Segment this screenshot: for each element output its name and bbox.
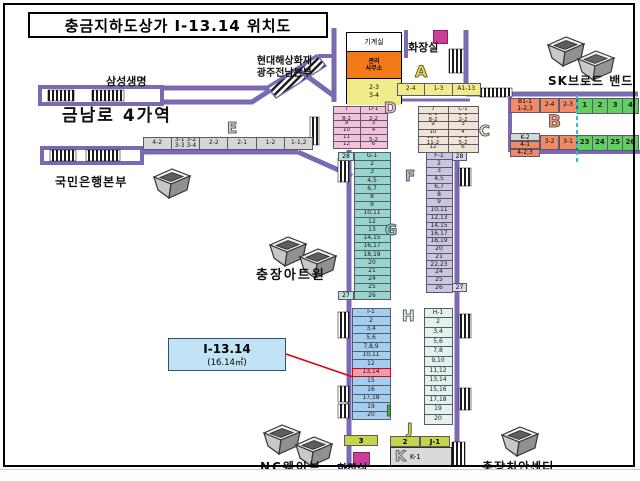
map-cell-highlighted: 13,14	[352, 368, 391, 378]
section-letter-e: E	[227, 119, 237, 137]
b-green-bottom-cells: 23242526	[577, 135, 638, 150]
map-cell: 23	[577, 135, 593, 151]
section-letter-i: I	[386, 402, 392, 420]
callout-unit-number: I-13.14	[203, 342, 250, 356]
b-unit: 2-4	[540, 98, 559, 113]
map-cell: 25	[607, 135, 623, 151]
map-cell: 2	[592, 98, 608, 114]
corridor-walls-layer	[0, 0, 640, 480]
kb-entrance-icon	[154, 169, 190, 198]
f-side-unit-top: 28	[452, 152, 467, 161]
management-office: 관리 사무소	[347, 52, 401, 79]
label-chungjang-artone: 충장아트원	[256, 269, 326, 284]
b-k2-unit: K-2	[510, 133, 540, 141]
section-h-cells: H-123,45,67,89,1011,1213,1415,1617,18192…	[424, 308, 452, 424]
k-unit: K-1	[410, 453, 421, 461]
b-unit: 2-3	[559, 98, 577, 113]
map-cell: 4-2	[143, 137, 172, 150]
map-cell: 3	[607, 98, 623, 114]
map-cell: 6	[360, 141, 388, 149]
b-green-top-cells: 1234	[577, 98, 638, 113]
label-sk-broadband: SK브로드 밴드	[548, 75, 633, 89]
section-letter-j: J	[407, 420, 413, 438]
map-cell: 1	[577, 98, 593, 114]
section-k-block: K K-1	[390, 447, 452, 467]
machine-room-label: 기계실	[347, 33, 401, 52]
unit-callout-box: I-13.14 (16.14㎡)	[168, 338, 286, 371]
map-cell: 2-4	[397, 83, 426, 96]
section-letter-d: D	[384, 99, 396, 117]
map-cell: 26	[426, 284, 453, 293]
map-cell: A1-13	[452, 83, 481, 96]
label-samsung-life: 삼성생명	[106, 76, 146, 89]
map-cell: 24	[592, 135, 608, 151]
b-unit: 3-2	[540, 135, 559, 150]
label-toilet-top: 화장실	[408, 42, 438, 55]
section-letter-k: K	[395, 449, 406, 465]
bottom-margin-strip	[0, 469, 640, 481]
location-map-page: { "title": "충금지하도상가 I-13.14 위치도", "label…	[0, 0, 640, 480]
bottom-green-unit: 3	[344, 435, 378, 446]
callout-unit-area: (16.14㎡)	[207, 356, 246, 368]
f-side-unit-bottom: 27	[452, 283, 467, 292]
section-a-cells: 2-41-3A1-13	[397, 83, 480, 95]
map-cell: 1-2	[256, 137, 285, 150]
map-cell: 1-3	[424, 83, 453, 96]
g-side-unit-top: 28	[338, 152, 354, 161]
section-c-table: 78-1 8-291011-1 11-212 C-12-1 2-2345-1 5…	[418, 106, 478, 152]
section-letter-h: H	[402, 307, 415, 325]
section-d-table: 78-1 8-29101112 D-12-1 2-2345-1 5-26	[333, 106, 387, 148]
j-unit: 2	[390, 436, 420, 447]
map-cell: 4	[622, 98, 638, 114]
b-unit: 4-1	[510, 141, 540, 149]
label-kb-bank: 국민은행본부	[55, 176, 127, 190]
b-head-unit: B1-1 1-2,3	[510, 98, 540, 113]
section-i-cells: I-123,45,67,8,910,111213,14151617,181920	[352, 308, 390, 420]
j-unit: J-1	[420, 436, 450, 447]
section-e-cells: 4-23-1 3-2 3-3 3-42-22-11-21-1,2	[143, 137, 313, 149]
section-f-cells: F-1234,56,78910,1112,1314,1516,1718,1920…	[426, 152, 452, 292]
c-right-column: C-12-1 2-2345-1 5-26	[448, 106, 478, 152]
map-title: 충금지하도상가 I-13.14 위치도	[28, 12, 328, 38]
g-side-unit-bottom: 27	[338, 291, 354, 300]
map-cell: 20	[352, 411, 391, 421]
map-cell: 1-1,2	[284, 137, 313, 150]
label-geumnamro-station: 금남로 4가역	[62, 107, 172, 127]
c-left-column: 78-1 8-291011-1 11-212	[418, 106, 448, 152]
label-hyundai-marine: 현대해상화재 광주전남본부	[226, 56, 312, 79]
section-letter-c: C	[479, 122, 490, 140]
section-letter-g: G	[385, 221, 397, 239]
map-cell: 20	[424, 414, 453, 425]
ncwave-entrance-icon	[264, 425, 300, 454]
map-cell: 12	[333, 141, 361, 149]
police-entrance-icon	[502, 427, 538, 456]
map-cell: 26	[622, 135, 638, 151]
d-left-column: 78-1 8-29101112	[333, 106, 360, 148]
machine-room-block: 기계실 관리 사무소 2-3 3-4	[346, 32, 402, 104]
section-letter-a: A	[415, 62, 427, 81]
map-cell: 3-1 3-2 3-3 3-4	[171, 137, 200, 150]
b-unit: 3-1	[559, 135, 577, 150]
map-cell: 26	[354, 291, 391, 300]
section-letter-b: B	[548, 112, 561, 132]
b-unit: 4-2,3	[510, 149, 540, 157]
map-cell: 2-2	[199, 137, 228, 150]
map-cell: 2-1	[227, 137, 256, 150]
section-letter-f: F	[405, 167, 415, 185]
artone-entrance-icon	[270, 237, 306, 266]
d-right-column: D-12-1 2-2345-1 5-26	[360, 106, 387, 148]
